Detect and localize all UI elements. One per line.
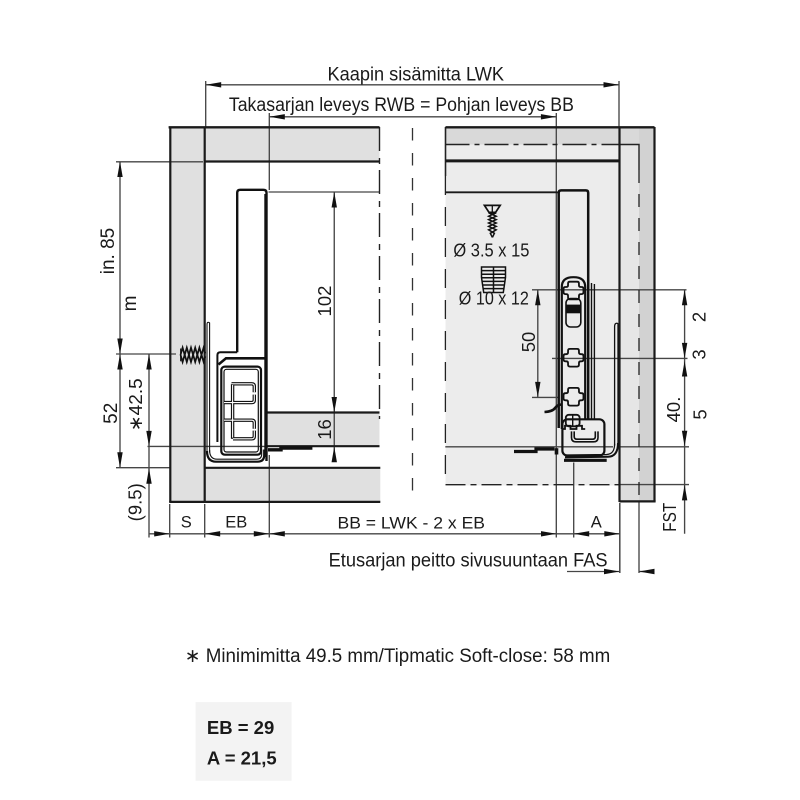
svg-text:Ø 3.5 x 15: Ø 3.5 x 15 bbox=[453, 239, 529, 260]
svg-text:3: 3 bbox=[689, 349, 710, 359]
svg-text:(9.5): (9.5) bbox=[125, 483, 146, 521]
svg-text:A = 21,5: A = 21,5 bbox=[207, 747, 277, 768]
svg-text:m: m bbox=[120, 296, 141, 312]
svg-text:102: 102 bbox=[314, 286, 335, 317]
svg-text:16: 16 bbox=[314, 419, 335, 440]
svg-text:A: A bbox=[591, 513, 602, 531]
svg-text:5: 5 bbox=[690, 409, 711, 419]
svg-text:FST: FST bbox=[659, 503, 680, 532]
svg-text:∗42.5: ∗42.5 bbox=[125, 378, 146, 431]
svg-text:Etusarjan peitto sivusuuntaan: Etusarjan peitto sivusuuntaan FAS bbox=[329, 550, 608, 571]
svg-text:EB: EB bbox=[225, 513, 247, 531]
svg-text:40.: 40. bbox=[663, 397, 684, 423]
svg-text:52: 52 bbox=[101, 403, 122, 424]
svg-text:S: S bbox=[181, 513, 192, 531]
svg-text:BB = LWK - 2 x EB: BB = LWK - 2 x EB bbox=[338, 515, 486, 533]
svg-text:Ø 10 x 12: Ø 10 x 12 bbox=[459, 287, 529, 308]
svg-text:2: 2 bbox=[689, 312, 710, 322]
svg-text:in. 85: in. 85 bbox=[98, 228, 119, 274]
svg-text:EB = 29: EB = 29 bbox=[207, 717, 274, 738]
svg-text:Takasarjan leveys RWB = Pohjan: Takasarjan leveys RWB = Pohjan leveys BB bbox=[229, 95, 574, 116]
svg-text:50: 50 bbox=[518, 332, 539, 353]
svg-text:∗ Minimimitta 49.5 mm/Tipmatic: ∗ Minimimitta 49.5 mm/Tipmatic Soft-clos… bbox=[185, 646, 611, 667]
svg-text:Kaapin sisämitta LWK: Kaapin sisämitta LWK bbox=[328, 65, 505, 86]
